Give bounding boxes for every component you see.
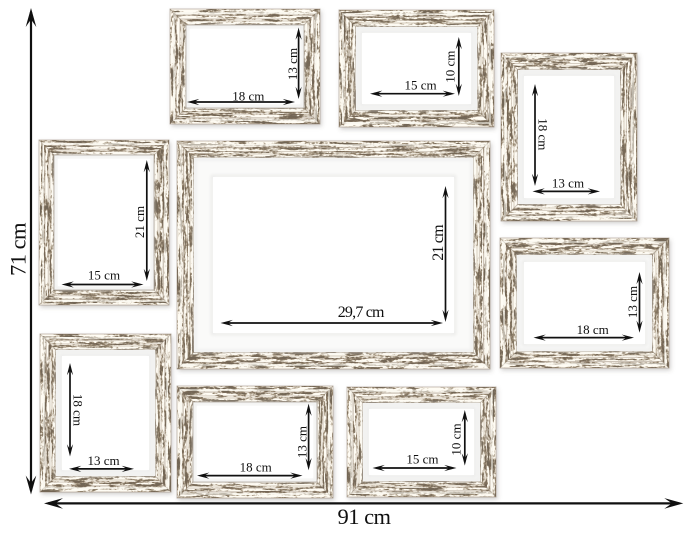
svg-text:15 cm: 15 cm bbox=[405, 78, 437, 93]
svg-text:18 cm: 18 cm bbox=[240, 460, 272, 475]
svg-text:10 cm: 10 cm bbox=[448, 423, 463, 455]
svg-text:10 cm: 10 cm bbox=[443, 51, 458, 83]
svg-text:18 cm: 18 cm bbox=[70, 394, 85, 426]
svg-text:18 cm: 18 cm bbox=[535, 118, 550, 150]
svg-text:15 cm: 15 cm bbox=[406, 451, 438, 466]
svg-text:13 cm: 13 cm bbox=[295, 426, 310, 458]
svg-text:21 cm: 21 cm bbox=[132, 206, 147, 238]
svg-text:91 cm: 91 cm bbox=[337, 504, 391, 529]
svg-text:15 cm: 15 cm bbox=[88, 268, 120, 283]
svg-text:21 cm: 21 cm bbox=[430, 224, 447, 261]
svg-text:71 cm: 71 cm bbox=[6, 222, 31, 276]
svg-text:13 cm: 13 cm bbox=[552, 176, 584, 191]
svg-text:13 cm: 13 cm bbox=[88, 453, 120, 468]
svg-text:13 cm: 13 cm bbox=[625, 286, 640, 318]
svg-text:18 cm: 18 cm bbox=[232, 88, 264, 103]
svg-text:13 cm: 13 cm bbox=[285, 48, 300, 80]
svg-text:18 cm: 18 cm bbox=[577, 322, 609, 337]
svg-text:29,7 cm: 29,7 cm bbox=[338, 304, 385, 321]
